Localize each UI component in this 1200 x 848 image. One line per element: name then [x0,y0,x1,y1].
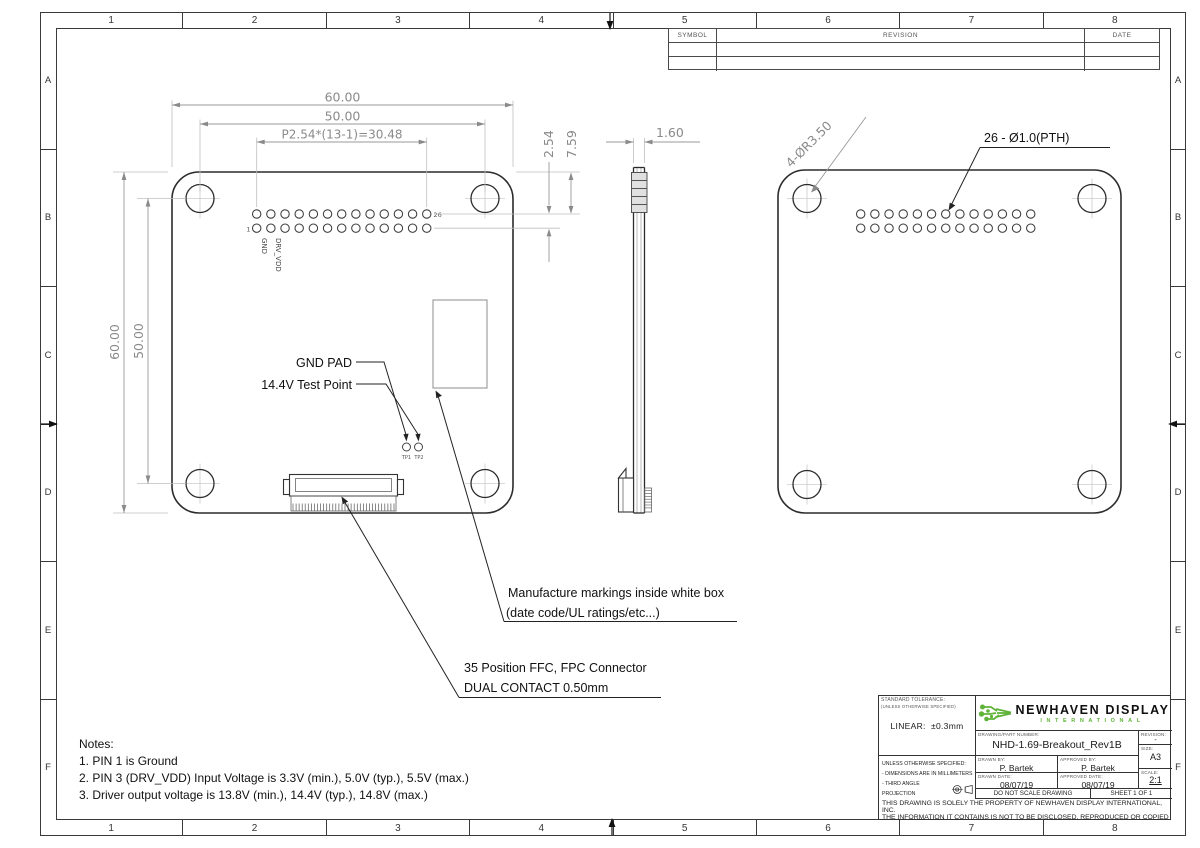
drawing-sheet: 1 2 3 4 5 6 7 8 1 2 3 4 5 6 7 8 A B C D … [0,0,1200,848]
front-view: TP1 TP2 26 1 GND DRV_VDD [172,172,513,513]
pin1-name-label: GND [260,238,268,254]
drawn-by-label: DRAWN BY: [976,756,1057,762]
side-ffc-connector [619,469,652,513]
tolerance-cell: STANDARD TOLERANCE: (UNLESS OTHERWISE SP… [879,696,976,756]
approved-date-label: APPROVED DATE: [1058,773,1138,779]
note-line: 1. PIN 1 is Ground [79,753,469,770]
tolerance-label: STANDARD TOLERANCE: [879,696,975,703]
drawn-by-cell: DRAWN BY: P. Bartek [976,756,1058,773]
approved-date-value: 08/07/19 [1058,780,1138,789]
drawn-date-label: DRAWN DATE: [976,773,1057,779]
linear-label: LINEAR: [891,721,926,731]
revision-value: - [1139,737,1172,744]
do-not-scale-cell: DO NOT SCALE DRAWING [976,789,1091,799]
pin26-number: 26 [434,211,442,219]
linear-value: ±0.3mm [931,721,963,731]
disclaimer-line: THE INFORMATION IT CONTAINS IS NOT TO BE… [882,814,1172,821]
side-view [619,168,652,514]
callout-gnd-pad: GND PAD [296,356,352,370]
tp1-label: TP1 [401,455,411,461]
side-pin-header [632,173,648,213]
note-line: 2. PIN 3 (DRV_VDD) Input Voltage is 3.3V… [79,770,469,787]
pin3-name-label: DRV_VDD [274,238,282,272]
revision-cell: REVISION: - [1139,731,1172,745]
size-cell: SIZE: A3 [1139,745,1172,769]
third-angle-projection-icon [952,784,975,795]
sheet-number-cell: SHEET 1 OF 1 [1091,789,1172,799]
manufacture-marking-box [433,300,487,388]
callout-pth-holes: 26 - Ø1.0(PTH) [984,131,1069,145]
brand-subtitle: INTERNATIONAL [1015,718,1169,724]
part-number-value: NHD-1.69-Breakout_Rev1B [976,739,1138,751]
tp2-label: TP2 [413,455,423,461]
spec-millimeters: - DIMENSIONS ARE IN MILLIMETERS [882,769,975,779]
newhaven-logo-icon [978,700,1012,726]
approved-by-value: P. Bartek [1058,763,1138,773]
spec-projection: - THIRD ANGLE PROJECTION [882,779,950,799]
dim-row-offset: 7.59 [564,130,579,158]
dim-width-outer: 60.00 [325,90,361,105]
disclaimer-cell: THIS DRAWING IS SOLELY THE PROPERTY OF N… [879,799,1172,821]
dim-height-outer: 60.00 [107,324,122,360]
callout-ffc-line2: DUAL CONTACT 0.50mm [464,681,608,695]
callout-ffc-line1: 35 Position FFC, FPC Connector [464,661,647,675]
callout-marking-line2: (date code/UL ratings/etc...) [506,606,660,620]
approved-by-label: APPROVED BY: [1058,756,1138,762]
notes-title: Notes: [79,736,469,753]
dim-width-holes: 50.00 [325,109,361,124]
callout-test-point: 14.4V Test Point [261,378,352,392]
specifications-cell: UNLESS OTHERWISE SPECIFIED: - DIMENSIONS… [879,756,976,799]
callout-marking-line1: Manufacture markings inside white box [508,586,725,600]
size-label: SIZE: [1139,745,1172,751]
pin1-number: 1 [246,226,250,234]
linear-tolerance: LINEAR: ±0.3mm [879,721,975,731]
disclaimer-line: THIS DRAWING IS SOLELY THE PROPERTY OF N… [882,800,1172,814]
test-point-tp2 [415,443,423,451]
part-number-label: DRAWING/PART NUMBER: [976,731,1138,737]
approved-date-cell: APPROVED DATE: 08/07/19 [1058,773,1139,789]
approved-by-cell: APPROVED BY: P. Bartek [1058,756,1139,773]
brand-name: NEWHAVEN DISPLAY [1015,703,1169,717]
drawn-date-cell: DRAWN DATE: 08/07/19 [976,773,1058,789]
title-block: STANDARD TOLERANCE: (UNLESS OTHERWISE SP… [878,695,1171,820]
back-view [778,170,1121,513]
note-line: 3. Driver output voltage is 13.8V (min.)… [79,787,469,804]
scale-cell: SCALE: 2:1 [1139,769,1172,789]
size-value: A3 [1139,752,1172,762]
dim-height-holes: 50.00 [131,323,146,359]
tolerance-sublabel: (UNLESS OTHERWISE SPECIFIED) [879,703,975,709]
side-connector-teeth [645,491,652,508]
dim-pin-pitch: P2.54*(13-1)=30.48 [282,128,403,142]
notes-block: Notes: 1. PIN 1 is Ground 2. PIN 3 (DRV_… [79,736,469,804]
part-number-cell: DRAWING/PART NUMBER: NHD-1.69-Breakout_R… [976,731,1139,756]
drawn-date-value: 08/07/19 [976,780,1057,789]
dim-row-gap: 2.54 [541,130,556,158]
unless-label: UNLESS OTHERWISE SPECIFIED: [882,759,975,769]
scale-value: 2:1 [1139,775,1172,785]
callout-corner-radius: 4-ØR3.50 [783,118,835,170]
dim-thickness: 1.60 [656,125,684,140]
drawn-by-value: P. Bartek [976,763,1057,773]
test-point-tp1 [403,443,411,451]
company-logo: NEWHAVEN DISPLAY INTERNATIONAL [976,696,1172,731]
